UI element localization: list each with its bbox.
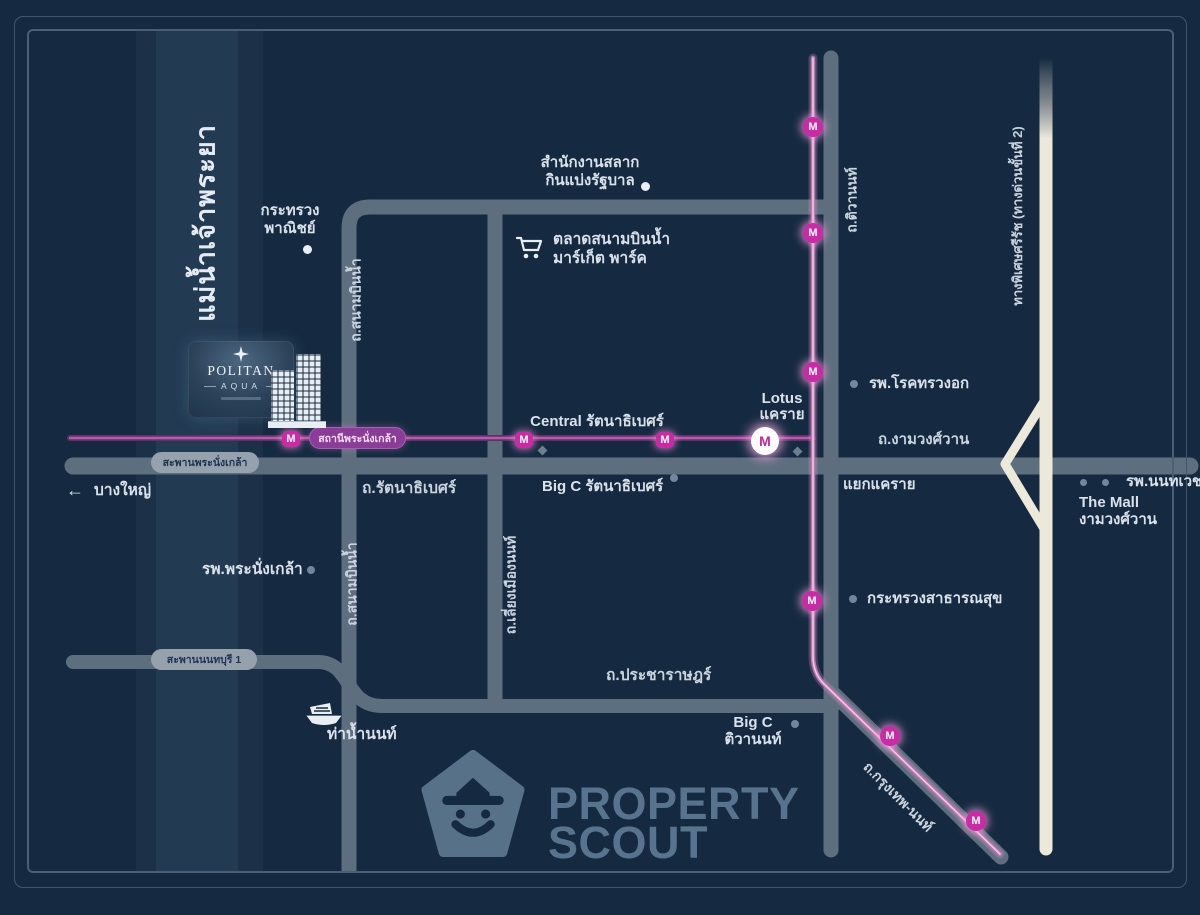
bridge-nonthaburi-pill: สะพานนนทบุรี 1 (151, 649, 257, 670)
mrt-station-marker: M (880, 726, 900, 746)
project-brand: POLITAN (207, 363, 274, 379)
bigc-rattanathibet-label: Big C รัตนาธิเบศร์ (542, 478, 663, 496)
place-dot (1102, 479, 1109, 486)
place-dot (850, 380, 858, 388)
road-label-rattanathibet: ถ.รัตนาธิเบศร์ (362, 480, 456, 499)
mrt-station-marker: M (515, 432, 533, 448)
lottery-office-label: สำนักงานสลาก กินแบ่งรัฐบาล (541, 154, 640, 191)
river-label: แม่น้ำเจ้าพระยา (190, 124, 223, 322)
place-dot (307, 566, 315, 574)
road-label-ngamwongwan: ถ.งามวงศ์วาน (878, 431, 969, 449)
road-label-liang-mueang: ถ.เลี่ยงเมืองนนท์ (502, 536, 519, 634)
phranangklao-hospital-label: รพ.พระนั่งเกล้า (202, 561, 303, 580)
mrt-station-marker: M (656, 432, 674, 448)
project-buildings-icon (268, 350, 326, 428)
place-dot (849, 595, 857, 603)
project-sub-brand: AQUA (204, 381, 278, 391)
ministry-commerce-label: กระทรวง พาณิชย์ (261, 202, 320, 239)
market-label: ตลาดสนามบินน้ำ มาร์เก็ต พาร์ค (553, 231, 670, 269)
nonthavej-hospital-label: รพ.นนทเวช (1126, 473, 1200, 491)
road-label-tiwanon: ถ.ติวานนท์ (843, 167, 860, 233)
project-fine-print (221, 397, 261, 400)
mrt-station-marker: M (802, 591, 822, 611)
bigc-tiwanon-label: Big C ติวานนท์ (725, 714, 782, 749)
mrt-station-marker: M (966, 811, 986, 831)
mrt-interchange-marker: M (751, 427, 779, 455)
the-mall-label: The Mall งามวงศ์วาน (1079, 494, 1157, 529)
mrt-station-marker: M (282, 431, 300, 447)
mrt-station-marker: M (803, 117, 823, 137)
propertyscout-wordmark: PROPERTY SCOUT (548, 784, 800, 862)
sparkle-icon (233, 346, 249, 362)
road-label-expressway: ทางพิเศษศรีรัช (ทางด่วนขั้นที่ 2) (1010, 126, 1026, 305)
road-label-sanambinnam-bottom: ถ.สนามบินน้ำ (343, 542, 360, 625)
location-map: แม่น้ำเจ้าพระยา กระทรวง พาณิชย์ สำนักงาน… (0, 0, 1200, 915)
shopping-cart-icon (516, 236, 544, 262)
place-dot (641, 182, 650, 191)
place-dot (670, 474, 678, 482)
mrt-station-marker: M (803, 362, 823, 382)
road-label-sanambinnam-top: ถ.สนามบินน้ำ (347, 258, 364, 341)
lotus-khaerai-label: Lotus แคราย (760, 391, 805, 423)
propertyscout-mascot-icon (420, 750, 526, 862)
mrt-station-marker: M (803, 223, 823, 243)
ferry-boat-icon (300, 697, 348, 727)
yaek-khaerai-label: แยกแคราย (843, 476, 916, 494)
bridge-phranangklao-pill: สะพานพระนั่งเกล้า (151, 452, 259, 473)
pier-nonthaburi-label: ท่าน้ำนนท์ (327, 726, 397, 745)
ministry-health-label: กระทรวงสาธารณสุข (867, 590, 1002, 608)
bang-yai-label: ← บางใหญ่ (66, 480, 151, 502)
place-dot (791, 720, 799, 728)
place-dot (303, 245, 312, 254)
central-rattanathibet-label: Central รัตนาธิเบศร์ (530, 413, 664, 431)
road-label-pracharat: ถ.ประชาราษฎร์ (606, 667, 711, 686)
place-dot (1080, 479, 1087, 486)
chest-hospital-label: รพ.โรคทรวงอก (869, 375, 969, 393)
propertyscout-watermark: PROPERTY SCOUT (420, 750, 800, 862)
mrt-station-phranangklao-pill: สถานีพระนั่งเกล้า (309, 427, 406, 449)
arrow-left-icon: ← (66, 480, 84, 502)
